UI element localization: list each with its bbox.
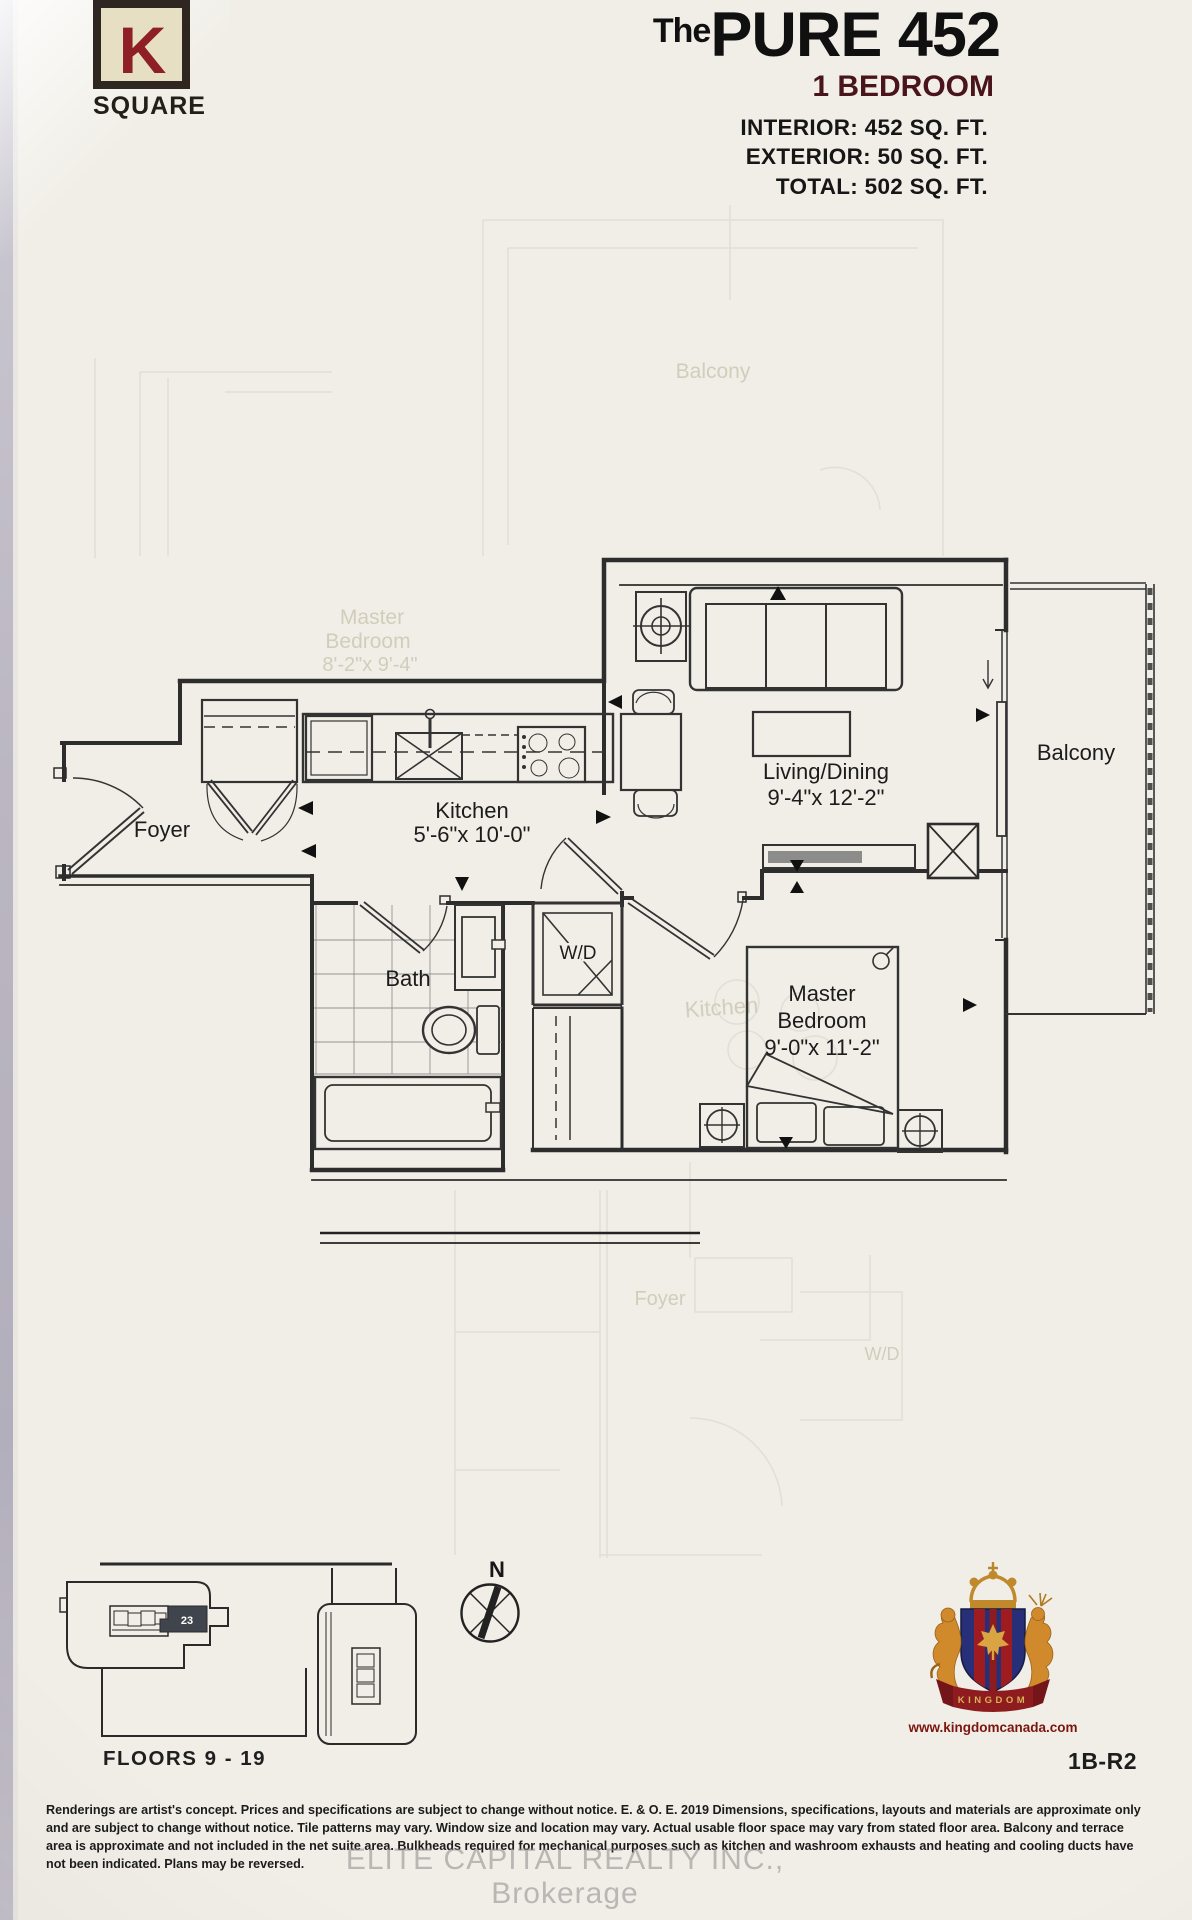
ghost-balcony-label: Balcony — [676, 360, 751, 383]
nightstand-left — [700, 1104, 744, 1147]
crest-stag — [1021, 1593, 1053, 1693]
keyplan-unit-number: 23 — [181, 1615, 193, 1627]
master-door — [628, 899, 743, 959]
crest-shield — [961, 1609, 1025, 1693]
keyplan-floors-label: FLOORS 9 - 19 — [103, 1747, 266, 1770]
room-label-master-1: Master — [788, 981, 855, 1006]
structural-column — [928, 824, 978, 878]
bath-door — [360, 902, 447, 953]
room-dims-master: 9'-0"x 11'-2" — [764, 1035, 879, 1060]
room-label-bath: Bath — [385, 966, 430, 991]
kingdom-crest-logo: KINGDOM www.kingdomcanada.com — [907, 1562, 1077, 1735]
dining-set — [621, 690, 681, 818]
toilet — [423, 1006, 499, 1054]
floorplan-flyer-page: K SQUARE ThePURE 452 1 BEDROOM INTERIOR:… — [0, 0, 1192, 1920]
vanity-sink — [455, 905, 505, 990]
room-label-kitchen: Kitchen — [435, 798, 508, 823]
plan-code: 1B-R2 — [1068, 1748, 1137, 1775]
crest-crown — [970, 1562, 1017, 1609]
ghost-master-label-2: Bedroom — [325, 630, 410, 653]
disclaimer-line-1: Renderings are artist's concept. Prices … — [46, 1802, 1156, 1820]
keyplan: 23 FLOORS 9 - 19 — [60, 1564, 416, 1770]
separator-rule — [320, 1233, 700, 1243]
crest-website: www.kingdomcanada.com — [907, 1720, 1077, 1735]
room-label-living-dining: Living/Dining — [763, 759, 889, 784]
fridge — [306, 716, 372, 780]
brokerage-watermark: ELITE CAPITAL REALTY INC., Brokerage — [285, 1843, 845, 1911]
ceiling-light-icon — [633, 592, 689, 661]
disclaimer-line-2: and are subject to change without notice… — [46, 1820, 1156, 1838]
room-label-balcony: Balcony — [1037, 740, 1115, 765]
room-dims-kitchen: 5'-6"x 10'-0" — [414, 822, 531, 847]
ghost-master-label-1: Master — [340, 606, 404, 629]
sofa — [690, 588, 902, 690]
floor-plan-canvas: Balcony Master Bedroom 8'-2"x 9'-4" Kitc… — [0, 0, 1192, 1920]
balcony-sliding-door — [983, 630, 1007, 938]
north-label: N — [489, 1557, 505, 1582]
coffee-table — [753, 712, 850, 756]
ghost-master-dims: 8'-2"x 9'-4" — [322, 654, 417, 676]
unit-walls — [54, 560, 1006, 1180]
room-label-master-2: Bedroom — [777, 1008, 866, 1033]
ghost-wd-label: W/D — [865, 1344, 900, 1364]
cooktop — [518, 727, 585, 782]
entry-door — [68, 778, 144, 874]
tv-console — [763, 845, 915, 868]
north-arrow-icon: N — [462, 1557, 519, 1642]
room-label-wd: W/D — [560, 943, 597, 964]
foyer-closet — [202, 700, 297, 841]
master-closet — [533, 1008, 622, 1150]
ghost-foyer-label: Foyer — [634, 1288, 685, 1310]
bathtub — [315, 1077, 501, 1149]
bleed-through-ghost — [95, 205, 943, 1558]
balcony-railing — [1006, 583, 1154, 1014]
room-dims-living-dining: 9'-4"x 12'-2" — [768, 785, 885, 810]
kitchen-sink — [396, 710, 462, 780]
kitchen-counter — [303, 714, 613, 782]
wd-closet — [533, 838, 622, 1005]
crest-banner-text: KINGDOM — [958, 1695, 1028, 1706]
room-label-foyer: Foyer — [134, 817, 190, 842]
nightstand-right — [898, 1110, 942, 1152]
